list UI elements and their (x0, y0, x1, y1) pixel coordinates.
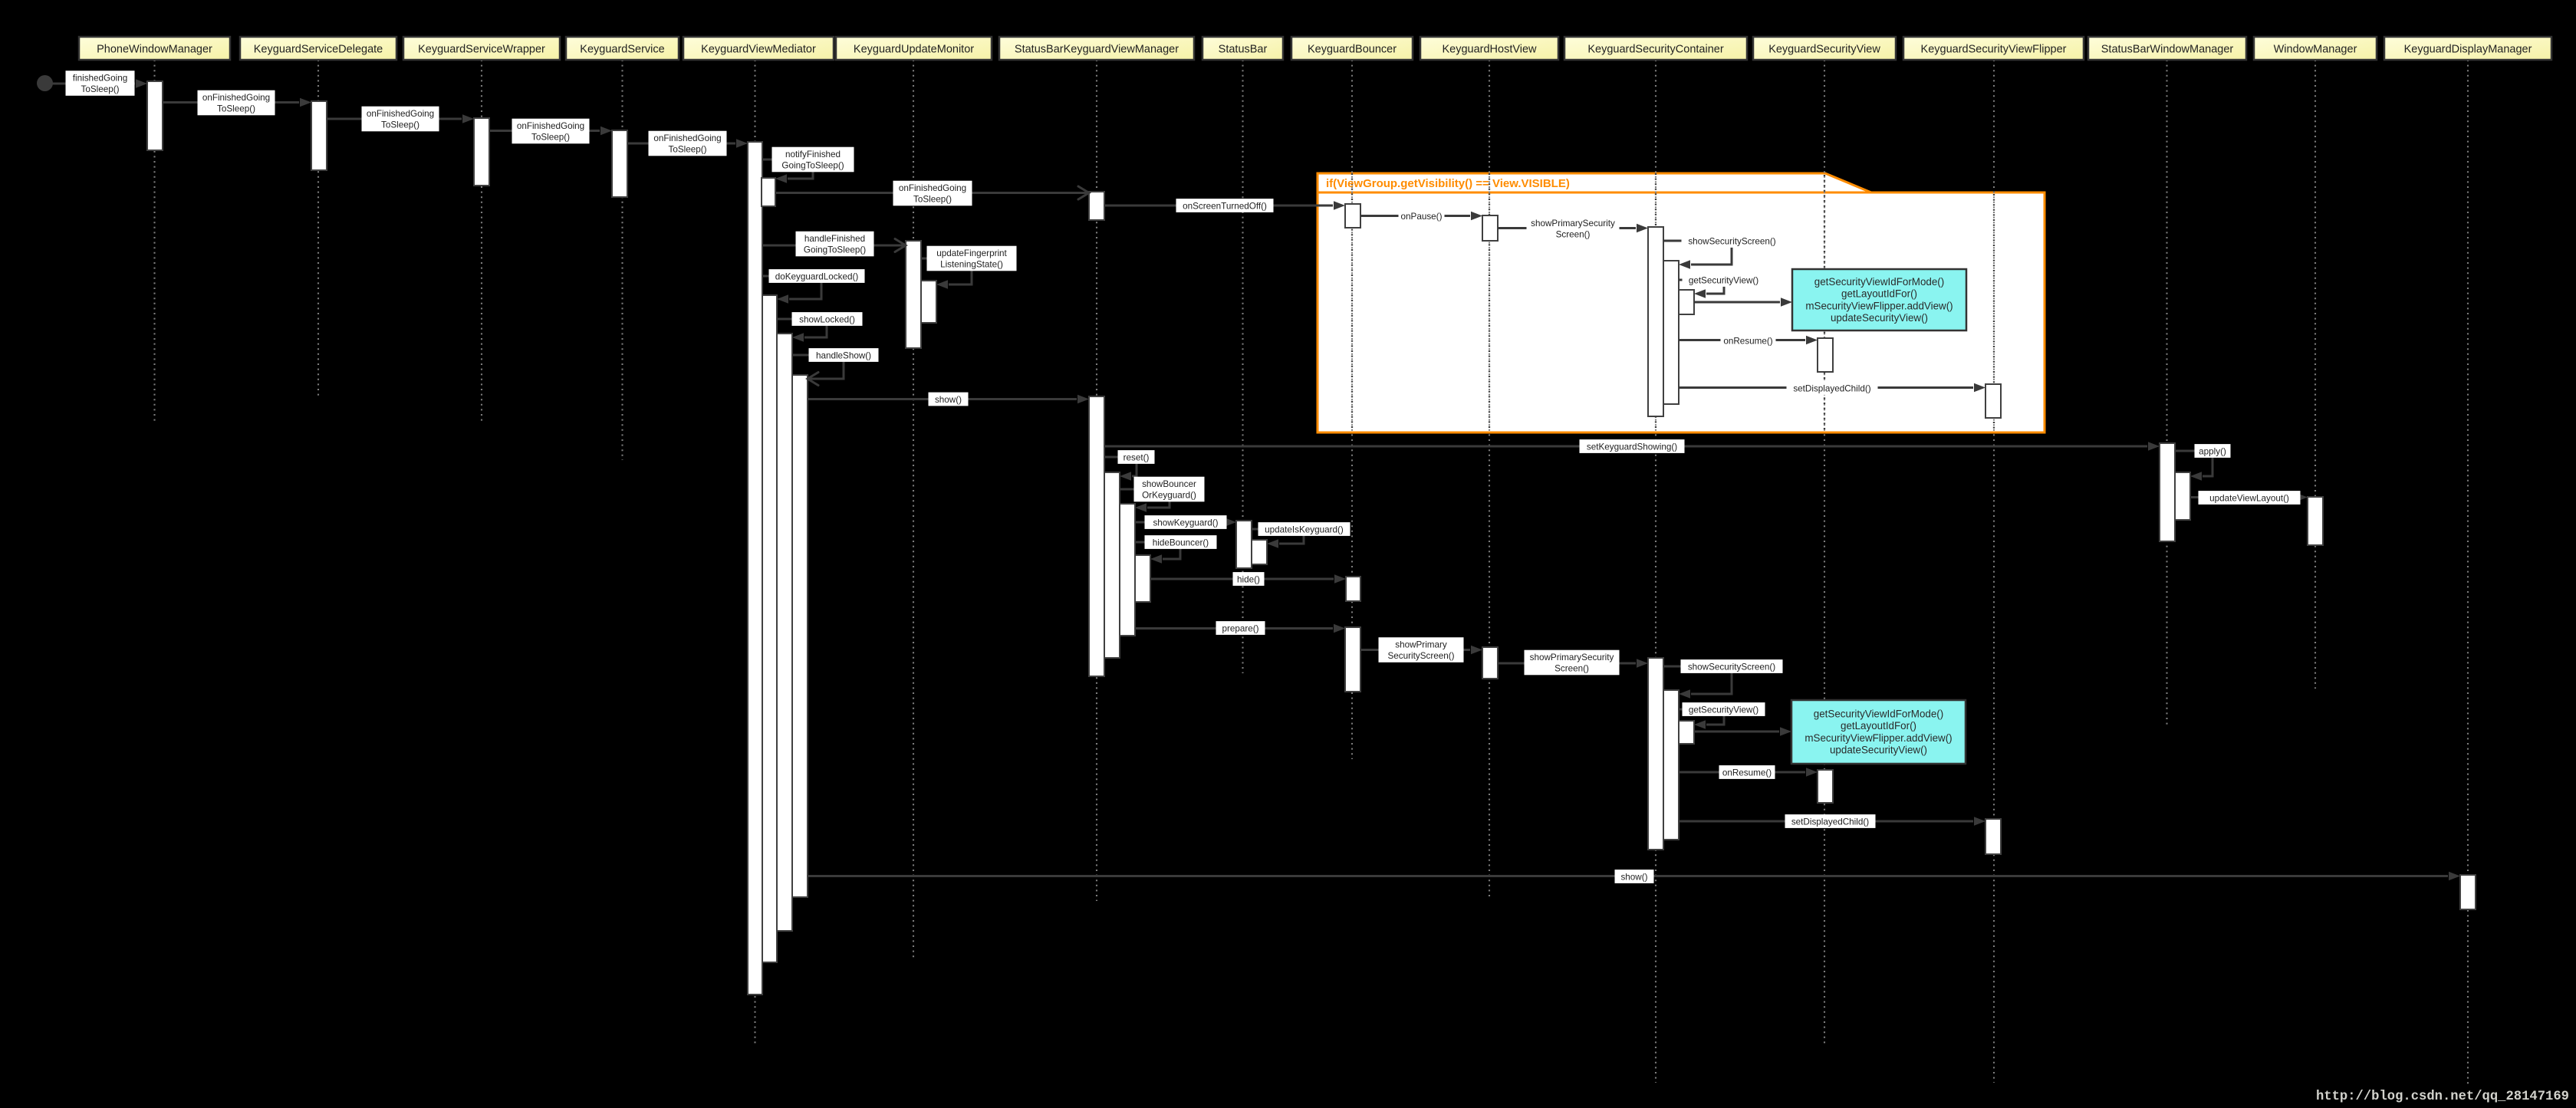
svg-text:StatusBar: StatusBar (1219, 44, 1268, 56)
svg-text:http://blog.csdn.net/qq_281471: http://blog.csdn.net/qq_28147169 (2316, 1090, 2569, 1104)
svg-text:updateViewLayout(): updateViewLayout() (2209, 493, 2289, 503)
svg-text:showPrimarySecurity: showPrimarySecurity (1530, 653, 1614, 662)
svg-text:hide(): hide() (1237, 574, 1260, 584)
svg-text:showSecurityScreen(): showSecurityScreen() (1688, 236, 1775, 246)
svg-text:showSecurityScreen(): showSecurityScreen() (1688, 662, 1775, 672)
svg-text:onPause(): onPause() (1401, 212, 1443, 222)
svg-text:updateFingerprint: updateFingerprint (936, 248, 1007, 258)
svg-text:updateSecurityView(): updateSecurityView() (1831, 312, 1928, 324)
svg-text:show(): show() (1620, 872, 1647, 882)
svg-text:SecurityScreen(): SecurityScreen() (1387, 651, 1454, 661)
svg-text:showPrimarySecurity: showPrimarySecurity (1531, 219, 1615, 229)
svg-text:hideBouncer(): hideBouncer() (1153, 538, 1209, 547)
svg-text:handleShow(): handleShow() (816, 350, 871, 360)
svg-text:setDisplayedChild(): setDisplayedChild() (1793, 383, 1870, 393)
svg-text:apply(): apply() (2199, 446, 2226, 456)
svg-text:Screen(): Screen() (1554, 664, 1589, 674)
svg-text:setKeyguardShowing(): setKeyguardShowing() (1587, 442, 1677, 452)
svg-text:ToSleep(): ToSleep() (531, 133, 570, 143)
svg-text:GoingToSleep(): GoingToSleep() (804, 245, 866, 255)
svg-text:GoingToSleep(): GoingToSleep() (781, 161, 844, 171)
svg-text:WindowManager: WindowManager (2274, 44, 2357, 56)
svg-text:onFinishedGoing: onFinishedGoing (202, 93, 270, 103)
svg-text:KeyguardServiceDelegate: KeyguardServiceDelegate (254, 44, 383, 56)
svg-text:StatusBarWindowManager: StatusBarWindowManager (2101, 44, 2234, 56)
svg-text:onFinishedGoing: onFinishedGoing (367, 109, 434, 119)
svg-text:mSecurityViewFlipper.addView(): mSecurityViewFlipper.addView() (1805, 300, 1953, 311)
svg-text:ToSleep(): ToSleep() (913, 195, 952, 205)
svg-text:KeyguardUpdateMonitor: KeyguardUpdateMonitor (854, 44, 974, 56)
svg-text:getSecurityViewIdForMode(): getSecurityViewIdForMode() (1814, 709, 1943, 720)
svg-text:setDisplayedChild(): setDisplayedChild() (1791, 817, 1869, 827)
svg-text:if(ViewGroup.getVisibility() =: if(ViewGroup.getVisibility() == View.VIS… (1326, 177, 1570, 190)
svg-text:mSecurityViewFlipper.addView(): mSecurityViewFlipper.addView() (1805, 732, 1952, 744)
svg-text:KeyguardDisplayManager: KeyguardDisplayManager (2404, 44, 2532, 56)
svg-text:finishedGoing: finishedGoing (73, 73, 127, 83)
svg-text:reset(): reset() (1124, 452, 1150, 462)
svg-text:KeyguardHostView: KeyguardHostView (1442, 44, 1537, 56)
svg-text:getLayoutIdFor(): getLayoutIdFor() (1841, 720, 1916, 732)
svg-text:getSecurityViewIdForMode(): getSecurityViewIdForMode() (1814, 276, 1944, 288)
svg-text:onFinishedGoing: onFinishedGoing (899, 183, 966, 193)
svg-text:doKeyguardLocked(): doKeyguardLocked() (775, 271, 859, 281)
svg-text:ToSleep(): ToSleep() (81, 84, 119, 94)
svg-text:onResume(): onResume() (1723, 336, 1772, 346)
svg-text:onScreenTurnedOff(): onScreenTurnedOff() (1183, 201, 1267, 211)
svg-text:KeyguardSecurityContainer: KeyguardSecurityContainer (1587, 44, 1723, 56)
svg-text:showLocked(): showLocked() (799, 314, 855, 324)
svg-text:notifyFinished: notifyFinished (785, 150, 841, 159)
svg-text:showBouncer: showBouncer (1142, 479, 1196, 489)
svg-text:KeyguardServiceWrapper: KeyguardServiceWrapper (418, 44, 545, 56)
svg-text:KeyguardService: KeyguardService (580, 44, 664, 56)
svg-text:StatusBarKeyguardViewManager: StatusBarKeyguardViewManager (1015, 44, 1179, 56)
svg-text:updateIsKeyguard(): updateIsKeyguard() (1265, 524, 1344, 534)
svg-text:handleFinished: handleFinished (804, 234, 865, 244)
svg-text:getSecurityView(): getSecurityView() (1689, 275, 1758, 285)
svg-text:onFinishedGoing: onFinishedGoing (517, 121, 584, 131)
svg-text:getLayoutIdFor(): getLayoutIdFor() (1841, 288, 1917, 300)
svg-text:show(): show() (935, 395, 962, 405)
svg-text:ToSleep(): ToSleep() (668, 145, 706, 155)
svg-text:prepare(): prepare() (1222, 623, 1258, 633)
svg-text:KeyguardViewMediator: KeyguardViewMediator (701, 44, 816, 56)
svg-text:ToSleep(): ToSleep() (381, 120, 419, 130)
svg-text:onResume(): onResume() (1722, 768, 1772, 778)
svg-text:KeyguardBouncer: KeyguardBouncer (1308, 44, 1397, 56)
svg-text:OrKeyguard(): OrKeyguard() (1142, 491, 1196, 501)
svg-text:showPrimary: showPrimary (1395, 639, 1447, 649)
svg-text:KeyguardSecurityView: KeyguardSecurityView (1768, 44, 1880, 56)
svg-text:Screen(): Screen() (1556, 230, 1591, 240)
svg-text:KeyguardSecurityViewFlipper: KeyguardSecurityViewFlipper (1921, 44, 2067, 56)
svg-text:ToSleep(): ToSleep() (217, 104, 255, 114)
svg-text:ListeningState(): ListeningState() (940, 260, 1003, 270)
svg-text:getSecurityView(): getSecurityView() (1689, 705, 1758, 715)
svg-text:PhoneWindowManager: PhoneWindowManager (97, 44, 212, 56)
svg-text:updateSecurityView(): updateSecurityView() (1830, 744, 1927, 755)
svg-text:showKeyguard(): showKeyguard() (1153, 518, 1218, 528)
svg-text:onFinishedGoing: onFinishedGoing (653, 133, 721, 143)
